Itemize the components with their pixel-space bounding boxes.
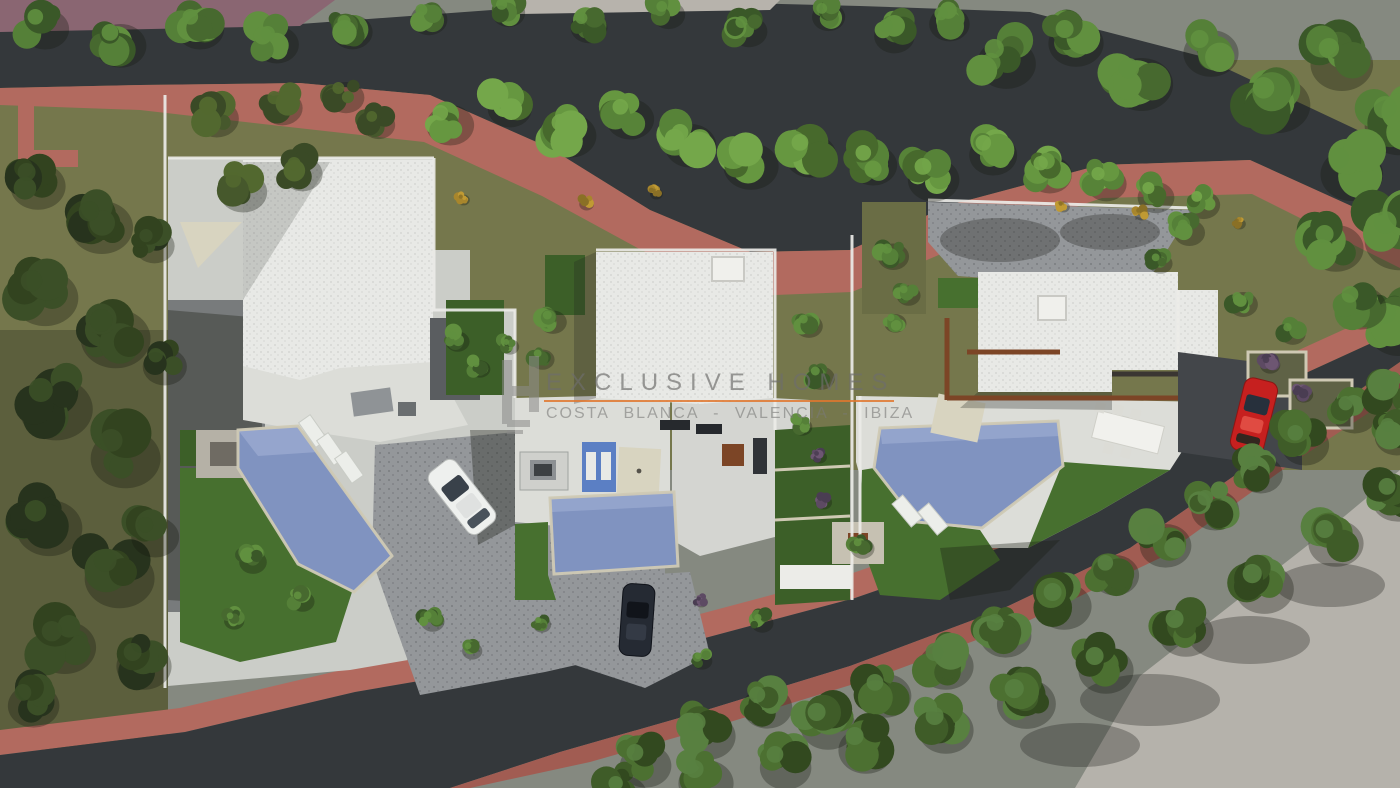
aerial-render: EXCLUSIVE HOMES COSTA BLANCA - VALENCIA … xyxy=(0,0,1400,788)
table-2 xyxy=(722,444,744,466)
site-plan-graphic xyxy=(0,0,1400,788)
dark-car xyxy=(619,583,656,657)
